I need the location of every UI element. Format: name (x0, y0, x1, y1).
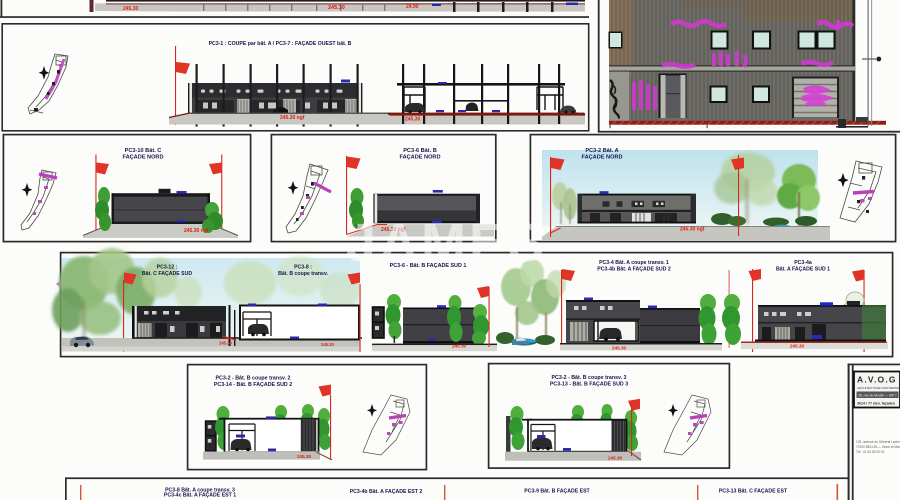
svg-text:245.30: 245.30 (612, 346, 626, 351)
svg-text:PC3-8 :: PC3-8 : (294, 265, 312, 271)
svg-text:245.30 ngf: 245.30 ngf (280, 115, 305, 121)
svg-text:245.30: 245.30 (405, 117, 421, 123)
svg-text:36, rue du Moulin — BP 7: 36, rue du Moulin — BP 7 (858, 394, 897, 398)
svg-text:PC3-4b Bât. A FAÇADE SUD 2: PC3-4b Bât. A FAÇADE SUD 2 (597, 267, 671, 273)
svg-text:PC3-12 :: PC3-12 : (157, 265, 178, 271)
svg-text:Bât. C FAÇADE SUD: Bât. C FAÇADE SUD (142, 271, 192, 277)
svg-text:PC3-13 - Bât. B FAÇADE SUD 3: PC3-13 - Bât. B FAÇADE SUD 3 (550, 382, 628, 388)
svg-text:245.30: 245.30 (328, 5, 345, 11)
svg-text:PC3-4 Bât. A coupe transv. 1: PC3-4 Bât. A coupe transv. 1 (599, 260, 669, 266)
svg-text:3614 / 77 élev. façades: 3614 / 77 élev. façades (857, 402, 895, 406)
svg-text:PC3-4a: PC3-4a (794, 260, 812, 266)
svg-text:245.30: 245.30 (452, 344, 466, 349)
svg-text:PC3-10 Bât. C: PC3-10 Bât. C (125, 148, 162, 154)
svg-text:245.30: 245.30 (608, 456, 622, 461)
svg-text:JAMES: JAMES (346, 213, 547, 273)
svg-text:PC3-1 : COUPE par bât. A / PC: PC3-1 : COUPE par bât. A / PC3-7 : FAÇAD… (209, 41, 352, 47)
svg-text:PC3-4c Bât. A FAÇADE EST 1: PC3-4c Bât. A FAÇADE EST 1 (164, 493, 236, 499)
svg-text:PC3-6 Bât. B: PC3-6 Bât. B (403, 148, 437, 154)
svg-text:24.90: 24.90 (406, 4, 419, 10)
svg-text:PC3-14 - Bât. B FAÇADE SUD 2: PC3-14 - Bât. B FAÇADE SUD 2 (214, 382, 292, 388)
svg-text:PC3-4b Bât. A FAÇADE EST 2: PC3-4b Bât. A FAÇADE EST 2 (350, 489, 423, 495)
svg-text:FAÇADE NORD: FAÇADE NORD (399, 155, 440, 161)
svg-text:123, avenue du Général Leclerc: 123, avenue du Général Leclerc (856, 440, 900, 444)
svg-text:PC3-2 - Bât. B coupe transv. 2: PC3-2 - Bât. B coupe transv. 2 (216, 376, 291, 382)
svg-text:Bât. A FAÇADE SUD 1: Bât. A FAÇADE SUD 1 (776, 267, 830, 273)
svg-text:245.30: 245.30 (321, 342, 334, 347)
svg-text:FAÇADE NORD: FAÇADE NORD (122, 155, 163, 161)
svg-text:PC3-9 Bât. B FAÇADE EST: PC3-9 Bât. B FAÇADE EST (524, 489, 590, 495)
svg-text:245.30: 245.30 (123, 6, 139, 12)
svg-text:PC3-2 Bât. A: PC3-2 Bât. A (585, 148, 618, 154)
svg-text:245.30 ngf: 245.30 ngf (184, 228, 209, 234)
svg-text:245.30: 245.30 (297, 454, 311, 459)
svg-text:PC3-13 Bât. C FAÇADE EST: PC3-13 Bât. C FAÇADE EST (719, 489, 788, 495)
svg-text:Tél : 01 64 52 00 00: Tél : 01 64 52 00 00 (856, 450, 885, 454)
svg-text:77000 MELUN — Seine et Marne: 77000 MELUN — Seine et Marne (856, 445, 900, 449)
svg-text:A.V.O.G: A.V.O.G (857, 375, 897, 385)
svg-text:245.30: 245.30 (790, 344, 804, 349)
svg-text:245.30: 245.30 (219, 341, 232, 346)
svg-text:ARCHITECTURE D'ENTREPRISE: ARCHITECTURE D'ENTREPRISE (857, 386, 900, 390)
svg-text:PC3-2 - Bât. B coupe transv. 3: PC3-2 - Bât. B coupe transv. 3 (552, 375, 627, 381)
svg-text:Bât. B coupe transv.: Bât. B coupe transv. (278, 271, 328, 277)
svg-text:FAÇADE NORD: FAÇADE NORD (581, 155, 622, 161)
svg-text:245.30 ngf: 245.30 ngf (680, 227, 705, 233)
